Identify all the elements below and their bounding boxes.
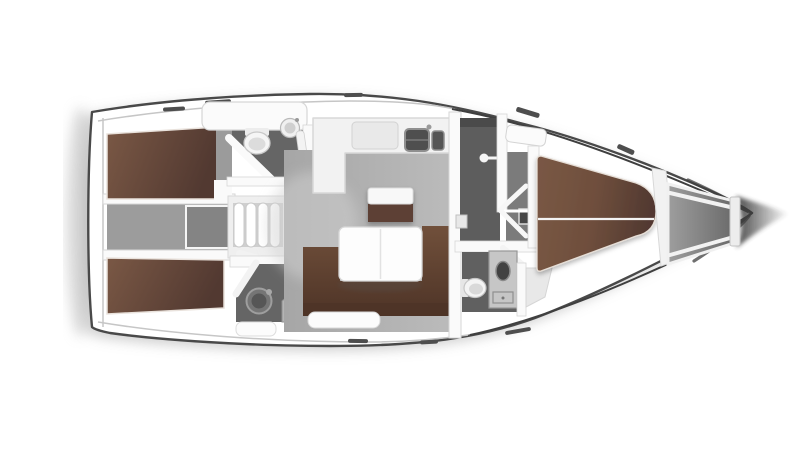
sink-icon	[432, 131, 444, 150]
sideboard-front	[368, 204, 413, 222]
double-berth	[107, 258, 224, 314]
toilet-bowl	[249, 138, 266, 151]
toilet-bowl	[252, 294, 267, 309]
wall	[497, 114, 507, 212]
steps-icon	[234, 203, 244, 247]
door-jamb	[456, 215, 467, 228]
sink-basin	[285, 123, 296, 134]
steps-icon	[246, 203, 256, 247]
faucet-icon	[266, 289, 272, 295]
stove-icon	[352, 122, 398, 149]
anchor-locker	[668, 184, 740, 264]
deck-hatch-icon	[344, 93, 363, 97]
deck-hatch-icon	[516, 107, 540, 119]
head-counter-shadow	[460, 118, 500, 127]
seat-pod	[236, 322, 276, 336]
engine-compartment	[103, 194, 235, 260]
seat-pod	[308, 312, 380, 328]
deck-hatch-icon	[348, 339, 368, 343]
sideboard	[368, 188, 413, 222]
yacht-floor-plan	[0, 0, 800, 450]
faucet-icon	[427, 125, 432, 130]
sideboard-top	[368, 188, 413, 204]
deck-hatch-icon	[505, 327, 531, 335]
drawer-knob	[502, 297, 505, 300]
sink-icon	[496, 262, 510, 281]
wall	[517, 263, 526, 316]
aft-cabin-port	[107, 126, 232, 202]
aft-cabin-starboard	[107, 258, 224, 314]
engine-box	[186, 206, 233, 248]
saloon	[266, 150, 460, 332]
faucet-icon	[295, 118, 299, 122]
double-berth	[107, 127, 218, 199]
floor-plan-canvas	[0, 0, 800, 450]
wall	[455, 241, 540, 252]
toilet-bowl	[469, 284, 483, 295]
bow-fitting	[730, 197, 740, 246]
door-handle-icon	[480, 154, 489, 163]
